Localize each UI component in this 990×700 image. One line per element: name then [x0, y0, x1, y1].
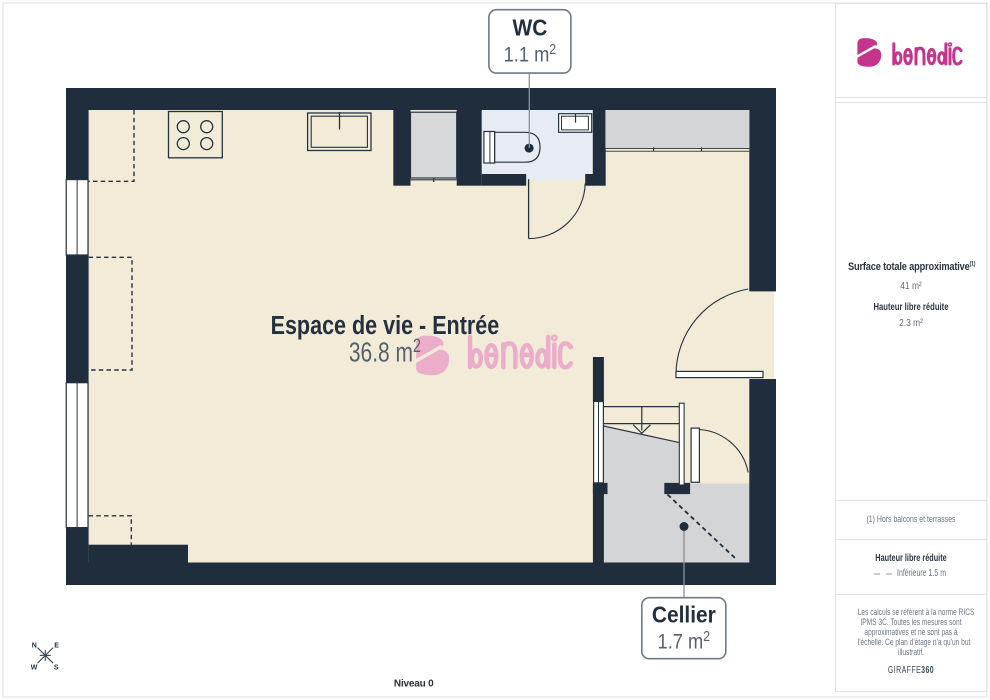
svg-text:Niveau 0: Niveau 0 — [394, 679, 434, 690]
svg-text:W: W — [31, 665, 38, 672]
svg-text:Cellier: Cellier — [652, 602, 716, 628]
svg-text:36.8 m2: 36.8 m2 — [349, 335, 421, 368]
svg-text:1.7 m2: 1.7 m2 — [658, 628, 711, 654]
svg-text:1.1 m2: 1.1 m2 — [504, 41, 557, 67]
svg-text:E: E — [54, 643, 59, 650]
svg-text:N: N — [32, 643, 37, 650]
svg-text:Espace de vie - Entrée: Espace de vie - Entrée — [271, 312, 500, 340]
svg-text:WC: WC — [512, 15, 547, 41]
svg-text:S: S — [54, 665, 59, 672]
